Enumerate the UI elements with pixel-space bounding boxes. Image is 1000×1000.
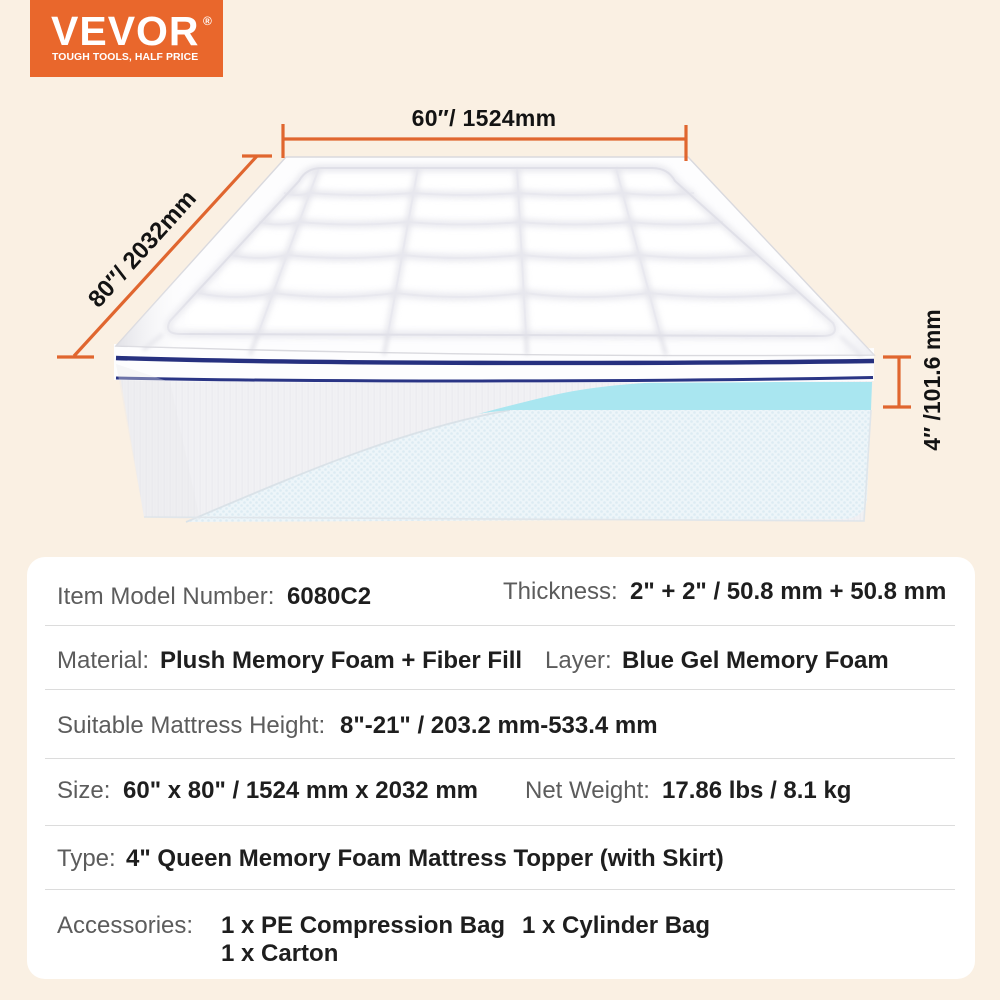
svg-text:60″/ 1524mm: 60″/ 1524mm [412, 105, 557, 131]
svg-text:4″ /101.6 mm: 4″ /101.6 mm [919, 309, 945, 450]
